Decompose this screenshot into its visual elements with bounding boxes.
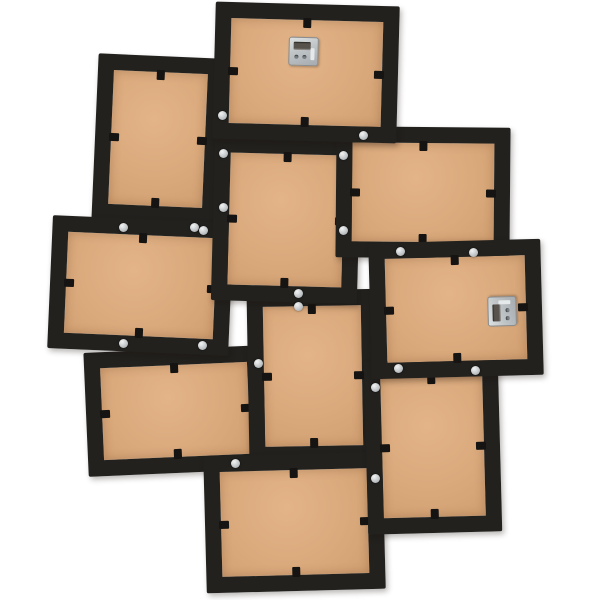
hanger-highlight bbox=[498, 300, 510, 304]
retainer-clip bbox=[64, 278, 74, 286]
retainer-clip bbox=[301, 117, 309, 127]
rivet bbox=[339, 226, 348, 235]
rivet bbox=[394, 364, 403, 373]
rivet bbox=[119, 339, 128, 348]
hanger-nail-hole bbox=[506, 316, 510, 320]
retainer-clip bbox=[308, 304, 316, 314]
rivet bbox=[190, 223, 199, 232]
sawtooth-hanger bbox=[487, 296, 517, 327]
hanger-nail-hole bbox=[302, 55, 306, 59]
rivet bbox=[469, 248, 478, 257]
photo-frame-back-center-bottom bbox=[247, 289, 380, 463]
retainer-clip bbox=[419, 141, 427, 151]
collage-frame-product-photo bbox=[0, 0, 600, 600]
retainer-clip bbox=[219, 520, 229, 528]
rivet bbox=[371, 383, 380, 392]
hanger-nail-hole bbox=[505, 308, 509, 312]
rivet bbox=[119, 223, 128, 232]
rivet bbox=[219, 203, 228, 212]
retainer-clip bbox=[292, 567, 300, 577]
retainer-clip bbox=[453, 353, 461, 363]
rivet bbox=[471, 366, 480, 375]
rivet bbox=[339, 151, 348, 160]
hanger-nail-hole bbox=[294, 55, 298, 59]
retainer-clip bbox=[354, 371, 364, 379]
photo-frame-back-top-center bbox=[212, 2, 400, 144]
retainer-clip bbox=[476, 441, 486, 449]
retainer-clip bbox=[169, 363, 177, 373]
photo-frame-back-bottom-center bbox=[203, 452, 386, 594]
hanger-highlight bbox=[310, 48, 314, 60]
rivet bbox=[198, 341, 207, 350]
retainer-clip bbox=[100, 410, 110, 418]
retainer-clip bbox=[262, 373, 272, 381]
rivet bbox=[294, 302, 303, 311]
photo-frame-back-bottom-right bbox=[364, 358, 502, 534]
photo-frame-back-left-middle bbox=[47, 215, 234, 356]
photo-frame-back-top-left bbox=[91, 53, 224, 224]
retainer-clip bbox=[197, 137, 207, 145]
retainer-clip bbox=[109, 133, 119, 141]
retainer-clip bbox=[228, 66, 238, 74]
rivet bbox=[294, 289, 303, 298]
rivet bbox=[359, 131, 368, 140]
retainer-clip bbox=[138, 233, 146, 243]
hanger-slot bbox=[294, 42, 311, 50]
retainer-clip bbox=[280, 278, 288, 288]
rivet bbox=[231, 459, 240, 468]
retainer-clip bbox=[486, 189, 496, 197]
retainer-clip bbox=[518, 303, 528, 311]
retainer-clip bbox=[173, 449, 181, 459]
retainer-clip bbox=[310, 438, 318, 448]
retainer-clip bbox=[384, 307, 394, 315]
rivet bbox=[371, 474, 380, 483]
retainer-clip bbox=[303, 18, 311, 28]
retainer-clip bbox=[227, 214, 237, 222]
retainer-clip bbox=[374, 70, 384, 78]
hanger-slot bbox=[492, 304, 500, 321]
rivet bbox=[218, 111, 227, 120]
retainer-clip bbox=[134, 328, 142, 338]
rivet bbox=[219, 149, 228, 158]
retainer-clip bbox=[431, 509, 439, 519]
photo-frame-back-right-middle bbox=[368, 239, 544, 379]
retainer-clip bbox=[151, 198, 159, 208]
rivet bbox=[199, 226, 208, 235]
retainer-clip bbox=[284, 152, 292, 162]
retainer-clip bbox=[289, 468, 297, 478]
rivet bbox=[396, 247, 405, 256]
retainer-clip bbox=[350, 188, 360, 196]
retainer-clip bbox=[380, 444, 390, 452]
retainer-clip bbox=[157, 70, 165, 80]
rivet bbox=[254, 359, 263, 368]
sawtooth-hanger bbox=[288, 37, 319, 67]
photo-frame-back-upper-right bbox=[335, 126, 510, 259]
retainer-clip bbox=[451, 255, 459, 265]
